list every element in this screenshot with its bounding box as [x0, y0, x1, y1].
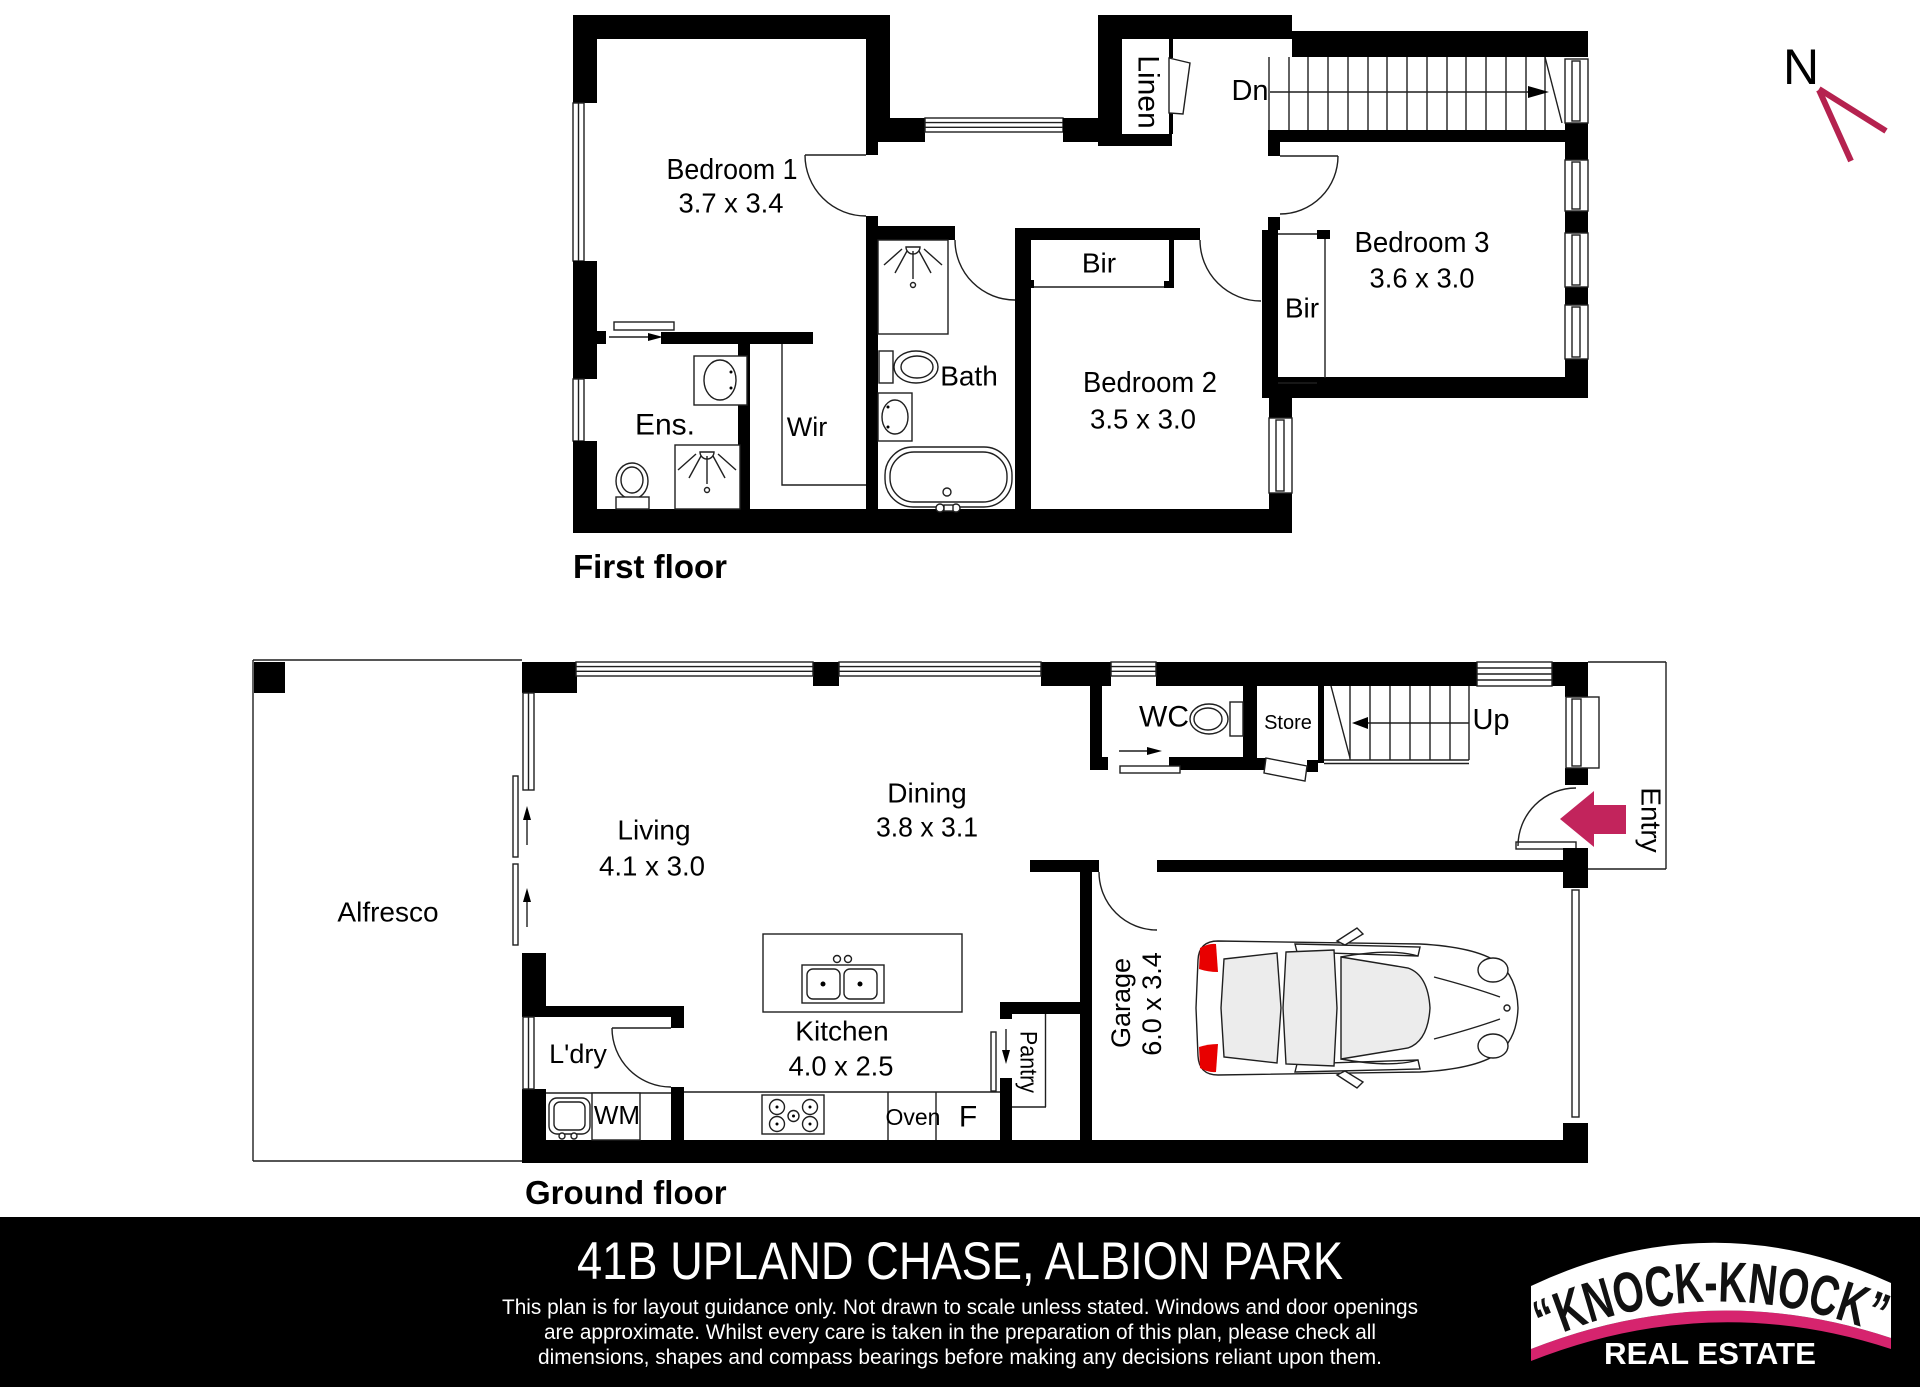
svg-text:Dining: Dining	[887, 778, 966, 809]
svg-text:4.0 x 2.5: 4.0 x 2.5	[789, 1051, 894, 1082]
svg-text:Dn: Dn	[1231, 75, 1268, 107]
svg-text:Kitchen: Kitchen	[795, 1016, 888, 1047]
svg-text:dimensions, shapes and compass: dimensions, shapes and compass bearings …	[538, 1345, 1382, 1369]
svg-text:L'dry: L'dry	[549, 1039, 607, 1069]
svg-text:Ground floor: Ground floor	[525, 1174, 727, 1211]
svg-text:Alfresco: Alfresco	[337, 897, 438, 928]
svg-text:F: F	[959, 1101, 977, 1134]
svg-text:Up: Up	[1472, 704, 1509, 736]
svg-text:This plan is for layout guidan: This plan is for layout guidance only. N…	[502, 1295, 1418, 1319]
svg-text:Wir: Wir	[787, 412, 827, 442]
svg-text:41B UPLAND CHASE, ALBION PARK: 41B UPLAND CHASE, ALBION PARK	[577, 1232, 1343, 1291]
svg-text:3.6 x 3.0: 3.6 x 3.0	[1370, 263, 1475, 294]
svg-text:Bir: Bir	[1285, 293, 1319, 324]
svg-text:Oven: Oven	[886, 1104, 941, 1130]
svg-text:N: N	[1783, 39, 1819, 95]
svg-text:WC: WC	[1139, 701, 1189, 734]
svg-text:Bedroom 1: Bedroom 1	[667, 154, 798, 186]
svg-text:3.8 x 3.1: 3.8 x 3.1	[876, 812, 978, 843]
svg-text:Garage: Garage	[1106, 958, 1136, 1048]
svg-text:3.5 x 3.0: 3.5 x 3.0	[1090, 404, 1196, 435]
svg-text:4.1 x 3.0: 4.1 x 3.0	[599, 851, 705, 882]
svg-text:WM: WM	[594, 1100, 640, 1130]
svg-text:Bedroom 2: Bedroom 2	[1083, 367, 1217, 399]
svg-text:Bir: Bir	[1082, 248, 1116, 279]
svg-text:Store: Store	[1264, 712, 1312, 734]
svg-text:Living: Living	[617, 815, 690, 846]
svg-text:Pantry: Pantry	[1015, 1031, 1042, 1093]
svg-text:6.0 x 3.4: 6.0 x 3.4	[1137, 952, 1167, 1056]
svg-text:Bath: Bath	[940, 361, 998, 392]
svg-text:Entry: Entry	[1636, 787, 1667, 852]
svg-text:Bedroom 3: Bedroom 3	[1355, 227, 1490, 259]
svg-text:Linen: Linen	[1132, 55, 1165, 128]
svg-text:Ens.: Ens.	[635, 409, 695, 442]
svg-text:First floor: First floor	[573, 548, 727, 585]
svg-text:3.7 x 3.4: 3.7 x 3.4	[679, 188, 784, 219]
svg-text:are approximate. Whilst every: are approximate. Whilst every care is ta…	[544, 1320, 1376, 1344]
svg-text:REAL ESTATE: REAL ESTATE	[1604, 1336, 1816, 1371]
